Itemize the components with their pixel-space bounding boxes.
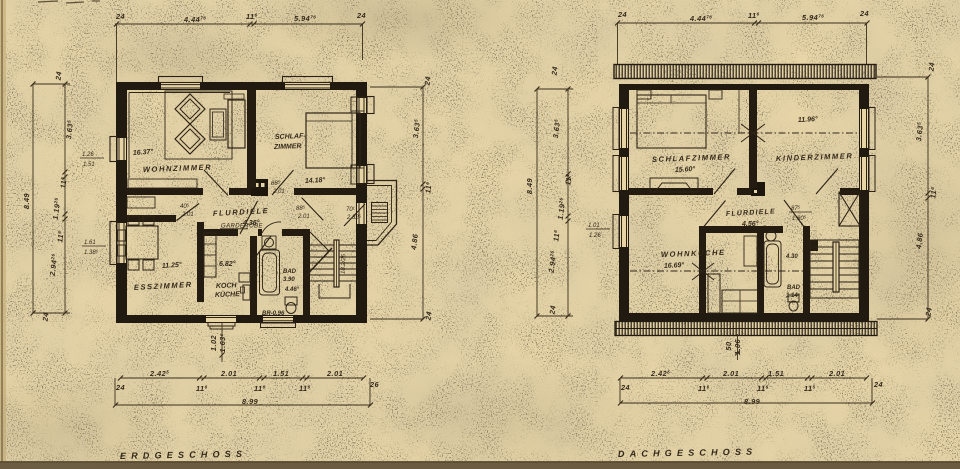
svg-text:2.01: 2.01 <box>722 369 739 378</box>
svg-text:18.2/25: 18.2/25 <box>341 253 348 274</box>
svg-text:16.37°: 16.37° <box>133 148 154 157</box>
svg-text:4.30: 4.30 <box>785 254 798 260</box>
svg-text:24: 24 <box>873 380 883 389</box>
svg-text:11.96°: 11.96° <box>798 115 818 124</box>
svg-text:24: 24 <box>356 11 366 20</box>
svg-text:1.06: 1.06 <box>733 338 742 355</box>
svg-text:24: 24 <box>926 62 936 73</box>
svg-text:24: 24 <box>923 307 933 318</box>
svg-text:88⁵: 88⁵ <box>296 205 306 212</box>
svg-text:1.61: 1.61 <box>84 240 96 246</box>
svg-text:24: 24 <box>53 71 63 82</box>
svg-text:1.51: 1.51 <box>273 369 289 378</box>
svg-text:14.18°: 14.18° <box>305 176 326 185</box>
svg-text:KOCH: KOCH <box>216 282 238 290</box>
svg-text:24: 24 <box>620 383 630 392</box>
svg-text:1.26: 1.26 <box>82 152 94 158</box>
svg-text:11.25°: 11.25° <box>162 261 183 270</box>
svg-text:8.99: 8.99 <box>744 397 761 406</box>
svg-text:1.01: 1.01 <box>588 223 600 229</box>
svg-text:ZIMMER: ZIMMER <box>273 143 302 151</box>
svg-text:2.425: 2.425 <box>149 369 169 378</box>
svg-text:24: 24 <box>115 383 125 392</box>
svg-text:2.01: 2.01 <box>272 189 285 195</box>
svg-text:24: 24 <box>115 12 125 21</box>
svg-text:SCHLAF-: SCHLAF- <box>275 133 307 141</box>
svg-text:BAD: BAD <box>787 285 801 291</box>
svg-text:4.56°: 4.56° <box>741 220 759 228</box>
svg-text:24: 24 <box>617 10 627 19</box>
svg-text:15.60°: 15.60° <box>675 165 696 174</box>
svg-text:1.14⁶: 1.14⁶ <box>786 292 801 299</box>
svg-text:1.02: 1.02 <box>209 335 218 351</box>
svg-text:24: 24 <box>547 305 557 316</box>
svg-text:2.425: 2.425 <box>650 369 670 378</box>
svg-text:BR-0.96: BR-0.96 <box>262 311 285 317</box>
svg-text:24: 24 <box>423 311 433 322</box>
svg-text:4.46°: 4.46° <box>284 287 300 293</box>
svg-text:1.26: 1.26 <box>589 233 601 239</box>
svg-text:1.51: 1.51 <box>83 162 95 168</box>
svg-text:40⁵: 40⁵ <box>180 203 190 210</box>
svg-text:BAD: BAD <box>283 269 297 275</box>
svg-text:26: 26 <box>369 380 380 389</box>
svg-text:24: 24 <box>422 76 432 87</box>
svg-text:24: 24 <box>549 66 559 77</box>
svg-text:2.32⁵: 2.32⁵ <box>346 214 362 221</box>
svg-text:1.51: 1.51 <box>768 369 784 378</box>
svg-text:88⁵: 88⁵ <box>271 180 281 187</box>
svg-text:GARDEROBE: GARDEROBE <box>221 224 264 230</box>
svg-text:6.82°: 6.82° <box>219 260 236 268</box>
svg-text:2.01: 2.01 <box>326 369 343 378</box>
svg-text:24: 24 <box>40 312 50 323</box>
svg-text:2.01: 2.01 <box>297 214 310 220</box>
svg-text:50: 50 <box>724 341 733 350</box>
svg-text:8.49: 8.49 <box>22 192 31 209</box>
svg-text:1.80⁵: 1.80⁵ <box>792 215 807 222</box>
svg-text:87⁵: 87⁵ <box>791 205 801 212</box>
svg-text:2.01: 2.01 <box>828 369 845 378</box>
svg-text:2.01: 2.01 <box>181 212 194 218</box>
svg-text:24: 24 <box>859 9 869 18</box>
svg-text:3.90: 3.90 <box>283 277 295 283</box>
svg-text:2.01: 2.01 <box>220 369 237 378</box>
svg-text:1.38⁶: 1.38⁶ <box>84 249 99 256</box>
svg-text:8.49: 8.49 <box>525 177 534 194</box>
svg-text:16.69°: 16.69° <box>664 261 685 270</box>
svg-text:8.99: 8.99 <box>242 397 259 406</box>
svg-text:70¹: 70¹ <box>346 207 355 213</box>
